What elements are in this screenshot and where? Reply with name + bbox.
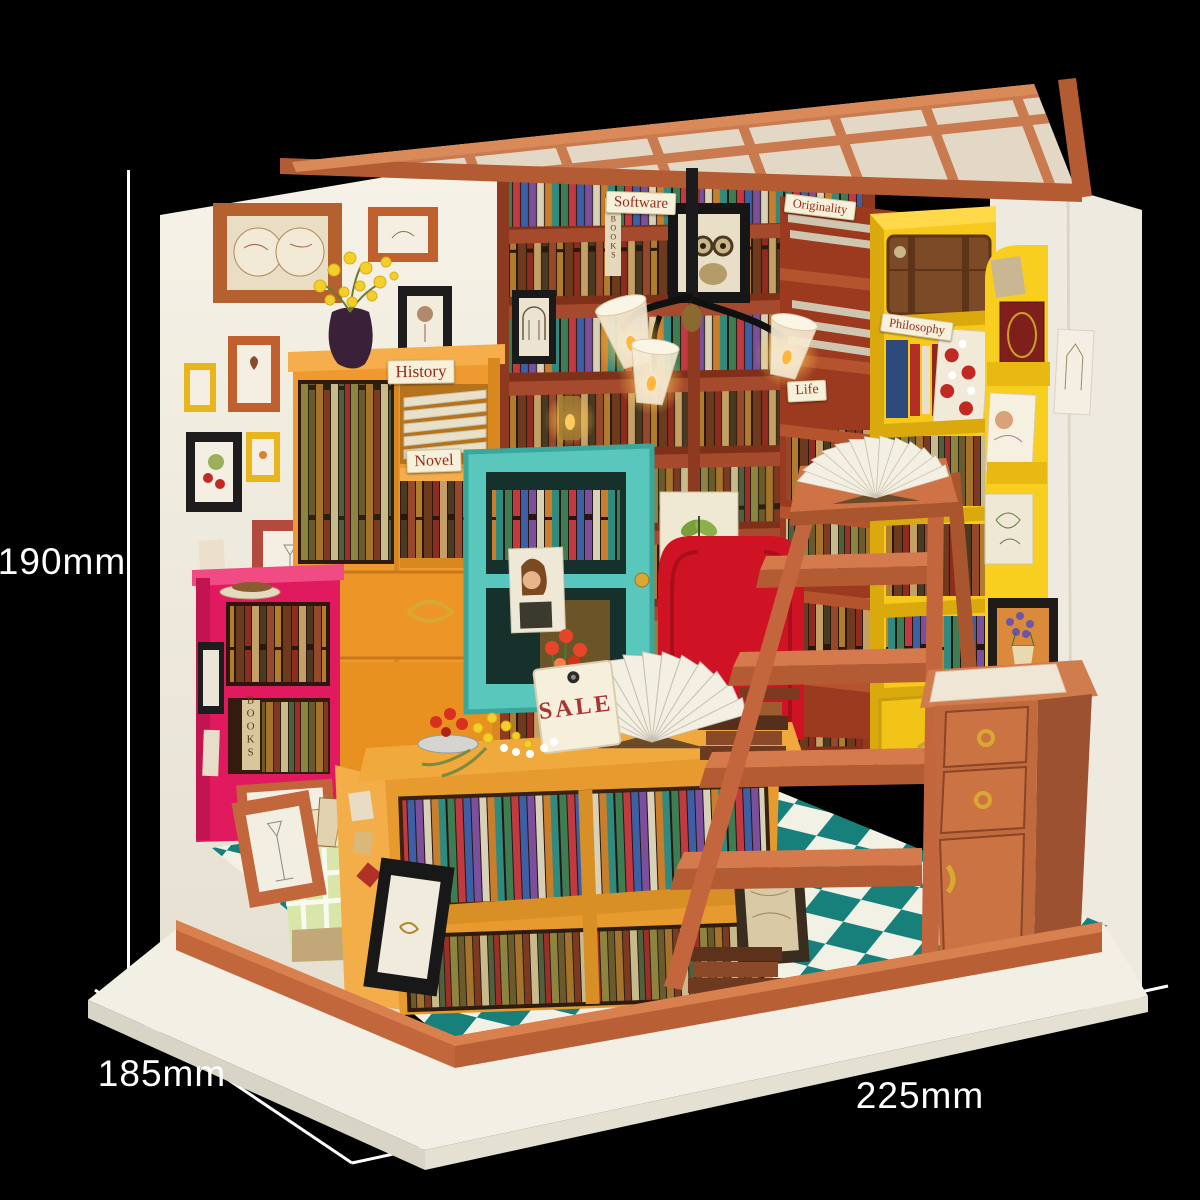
birdcage-picture-frame	[512, 290, 556, 364]
sign-life: Life	[787, 380, 827, 403]
lantern	[544, 394, 596, 446]
sign-novel: Novel	[406, 448, 462, 473]
wall-postcard	[1054, 329, 1094, 415]
portrait-card	[509, 547, 566, 633]
suitcase	[888, 236, 990, 314]
dimension-depth-label: 185mm	[98, 1053, 226, 1095]
miniature-library-scene: #fan use{fill:#f3efe2;stroke:#c9c2b0;str…	[0, 0, 1200, 1200]
strawberry-card	[932, 328, 989, 433]
sign-history: History	[387, 359, 454, 385]
books-spine-label: BOOKS	[243, 695, 256, 760]
ornate-red-book	[1000, 302, 1044, 368]
dimension-height-label: 190mm	[0, 541, 126, 583]
sign-software: Software	[606, 191, 677, 215]
dimension-width-label: 225mm	[856, 1075, 984, 1117]
owl-picture-frame	[668, 203, 750, 303]
product-dimension-photo: #fan use{fill:#f3efe2;stroke:#c9c2b0;str…	[0, 0, 1200, 1200]
books-spine-label-small: BOOKS	[608, 215, 618, 260]
